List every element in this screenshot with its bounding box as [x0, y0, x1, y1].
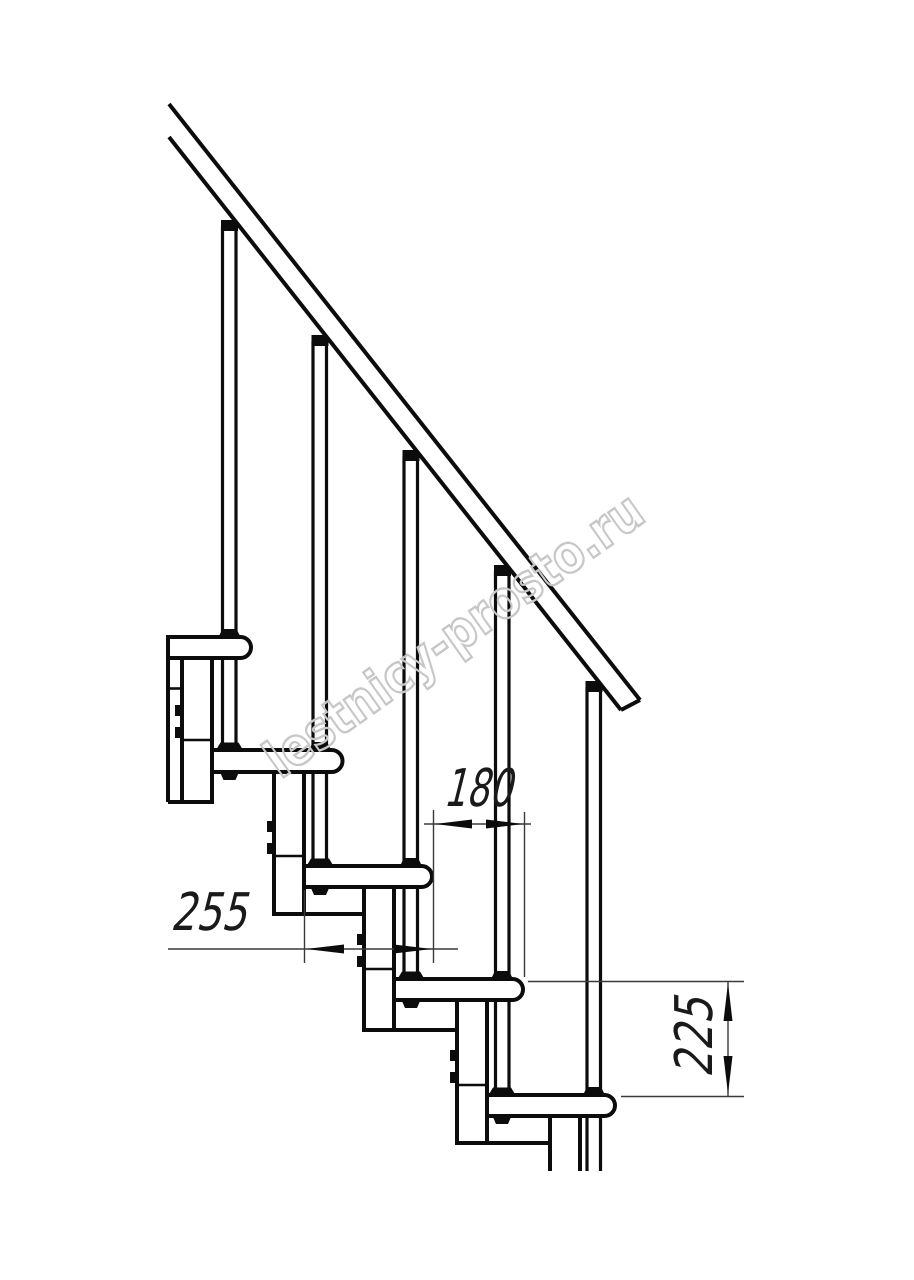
arrowhead-left: [306, 945, 344, 954]
under-tread-nut: [220, 772, 239, 780]
dimension-225: 225: [665, 982, 733, 1097]
support-column: [168, 658, 212, 802]
connector-clip: [175, 705, 183, 716]
dimension-180: 180: [424, 759, 531, 829]
baluster: [494, 565, 511, 1095]
connector-clip: [267, 843, 275, 854]
baluster-foot: [398, 972, 425, 980]
baluster: [312, 335, 329, 866]
connector-clip: [357, 934, 365, 945]
support-column: [357, 887, 457, 1030]
connector-clip: [175, 727, 183, 738]
connector-clip: [267, 821, 275, 832]
arrowhead-up: [724, 983, 733, 1021]
arrowhead-right: [486, 820, 523, 829]
under-tread-nut: [493, 1116, 512, 1124]
connector-clip: [450, 1050, 458, 1061]
dimension-label-depth: 255: [167, 883, 258, 943]
arrowhead-left: [435, 820, 472, 829]
under-tread-nut: [402, 1000, 421, 1008]
support-column: [550, 1116, 580, 1171]
technical-drawing-page: 180 255 225 lestnicy-prosto.ru: [0, 0, 914, 1280]
connector-clip: [450, 1072, 458, 1083]
tread: [304, 866, 432, 887]
baluster-foot: [216, 743, 243, 751]
tread: [394, 979, 523, 1000]
staircase-drawing: 180 255 225 lestnicy-prosto.ru: [0, 0, 914, 1280]
baluster-foot: [307, 859, 334, 867]
connector-clip: [357, 956, 365, 967]
under-tread-nut: [311, 887, 330, 895]
dimension-label-rise: 225: [665, 986, 725, 1081]
baluster: [403, 450, 420, 979]
arrowhead-right: [394, 945, 432, 954]
baluster-foot: [489, 1088, 516, 1096]
dimension-255: 255: [167, 883, 458, 954]
tread: [487, 1095, 615, 1116]
arrowhead-down: [724, 1056, 733, 1094]
baluster: [221, 220, 238, 750]
tread: [168, 637, 251, 658]
